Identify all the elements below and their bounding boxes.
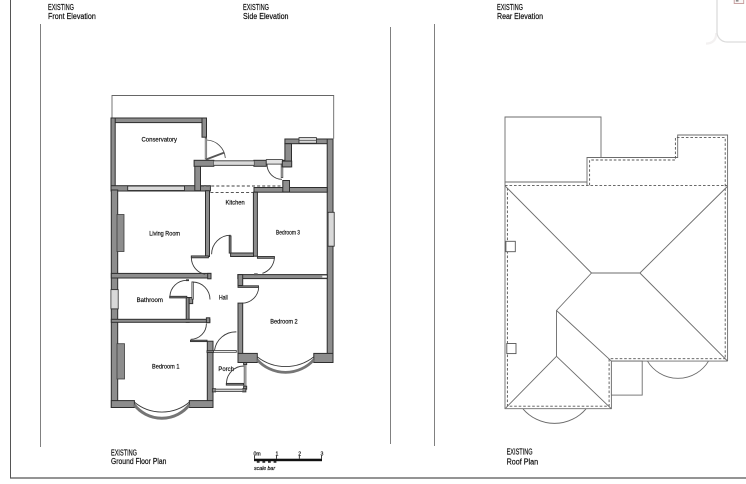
svg-text:EXISTING: EXISTING [507,447,533,456]
svg-text:1: 1 [276,451,279,457]
svg-text:2: 2 [298,451,301,457]
svg-text:Rear Elevation: Rear Elevation [497,12,543,21]
svg-text:Kitchen: Kitchen [226,200,246,207]
svg-text:EXISTING: EXISTING [243,3,269,12]
svg-text:3: 3 [321,451,324,457]
svg-text:Bedroom 2: Bedroom 2 [270,319,298,326]
svg-text:Conservatory: Conservatory [142,137,178,144]
svg-text:Bathroom: Bathroom [137,297,163,304]
svg-text:Roof Plan: Roof Plan [507,457,538,466]
svg-text:EXISTING: EXISTING [48,3,74,12]
svg-text:Ground Floor Plan: Ground Floor Plan [111,457,166,466]
svg-text:0m: 0m [254,451,261,457]
svg-text:Living Room: Living Room [149,231,180,238]
svg-text:EXISTING: EXISTING [497,3,523,12]
svg-text:scale bar: scale bar [254,466,275,472]
svg-text:Bedroom 1: Bedroom 1 [152,363,180,370]
svg-text:Porch: Porch [218,366,234,373]
svg-text:Front Elevation: Front Elevation [48,12,96,21]
svg-text:Bedroom 3: Bedroom 3 [276,230,300,237]
svg-text:Hall: Hall [219,295,228,302]
svg-text:Side Elevation: Side Elevation [243,12,289,21]
